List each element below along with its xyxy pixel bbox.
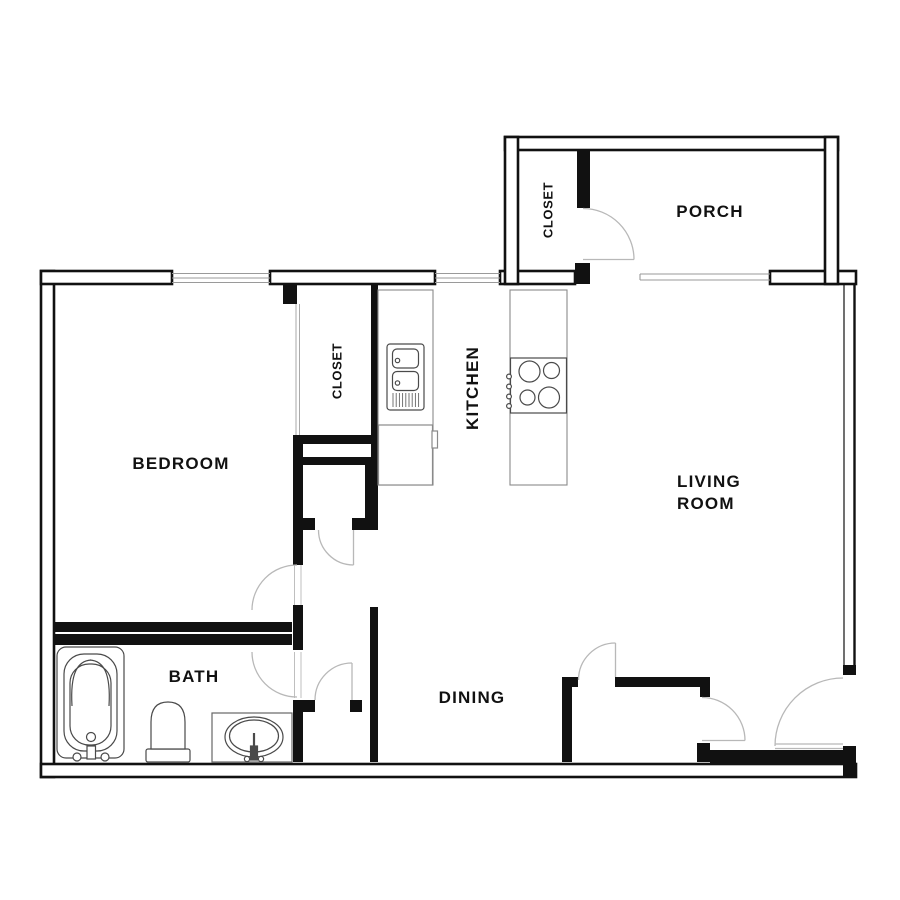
kitchen-label: KITCHEN [463,346,483,430]
living-room-window-wall [844,284,855,665]
entry-closet-door-arc [702,698,745,741]
bedroom-door-arc [252,565,301,610]
bath-door-arc [252,652,301,698]
toilet-icon [146,702,190,762]
porch-label: PORCH [676,202,743,222]
stove-cooktop-icon [507,358,567,413]
porch-closet-door-arc [583,209,634,260]
linen-closet-door-arc [315,663,352,700]
porch-sliding-door [640,274,770,280]
bathtub-icon [57,647,124,761]
bedroom-label: BEDROOM [132,454,229,474]
porch-closet-label: CLOSET [541,182,556,238]
entry-door-arc [775,678,843,749]
bedroom-closet-sliding-door [296,304,300,435]
floor-plan-drawing [0,0,900,900]
dining-closet-door-arc [579,643,616,680]
vestibule-closet-door-arc [319,530,354,565]
bath-label: BATH [169,667,220,687]
refrigerator-icon [379,425,438,485]
bedroom-window [172,274,270,283]
floor-plan-canvas: BEDROOM CLOSET KITCHEN LIVING ROOM PORCH… [0,0,900,900]
dining-label: DINING [439,688,506,708]
vanity-sink-icon [212,713,292,762]
living-room-label-line2: ROOM [677,493,741,515]
living-room-label-line1: LIVING [677,471,741,493]
kitchen-window [435,274,500,283]
bedroom-closet-label: CLOSET [330,343,345,399]
living-room-label: LIVING ROOM [677,471,741,515]
